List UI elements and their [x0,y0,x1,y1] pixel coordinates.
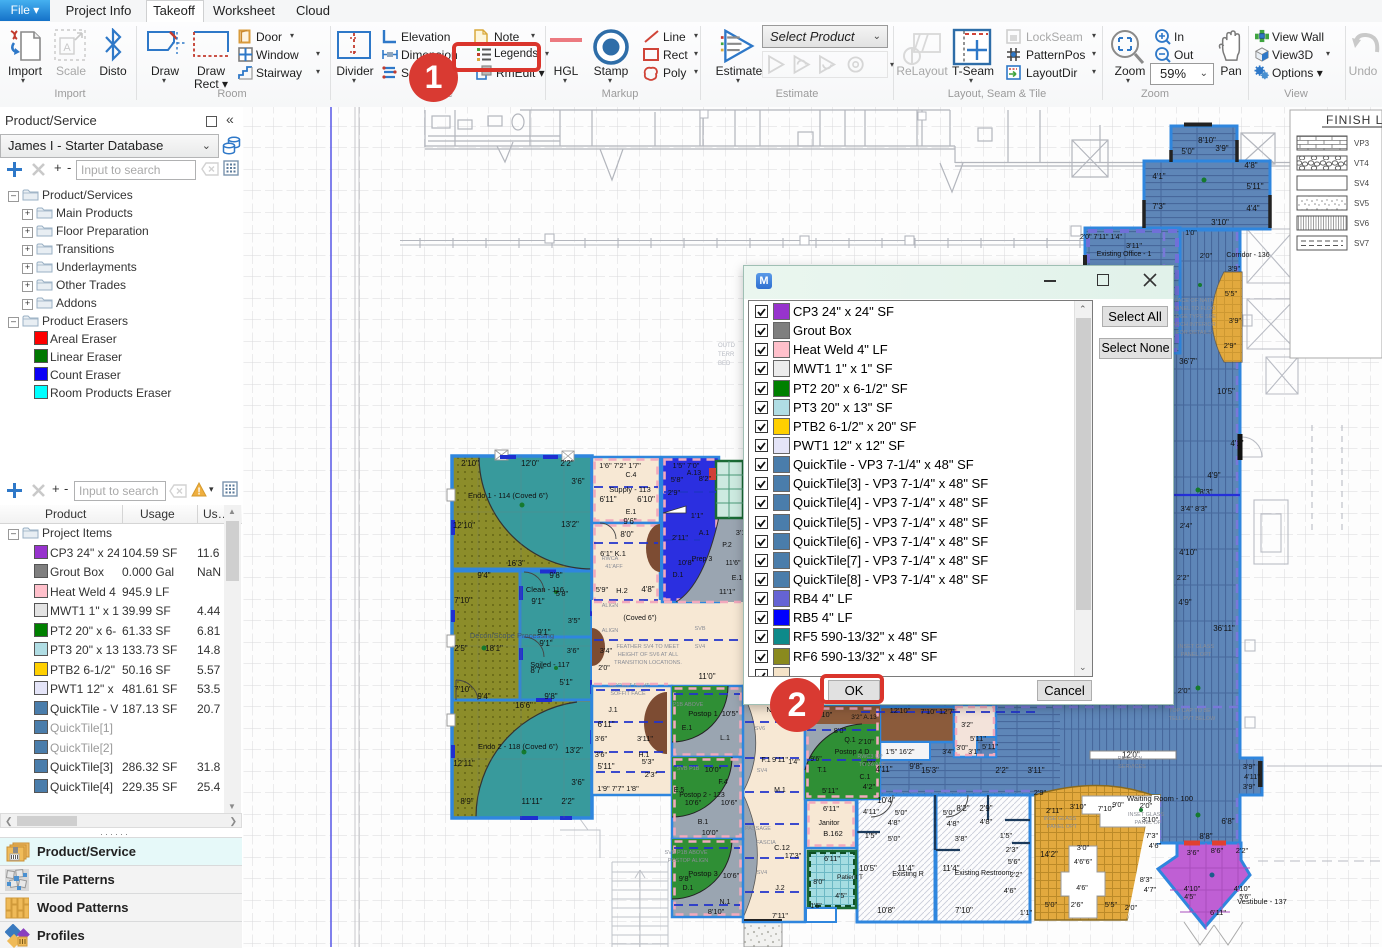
svg-text:3'11": 3'11" [637,734,653,743]
svg-text:2'0": 2'0" [1125,903,1138,912]
svg-text:16'3": 16'3" [507,559,525,568]
svg-text:6'11": 6'11" [824,854,840,863]
svg-text:C.1: C.1 [860,774,871,781]
svg-text:EDGE TYPE SEE: EDGE TYPE SEE [1172,314,1216,320]
svg-text:1'4": 1'4" [788,759,800,766]
svg-text:C.4: C.4 [626,472,637,479]
svg-text:10'8": 10'8" [877,906,895,915]
svg-text:SOFFIT FACE: SOFFIT FACE [610,691,646,697]
svg-text:2'6": 2'6" [1071,900,1084,909]
svg-text:2'2": 2'2" [1177,573,1190,582]
svg-text:5'5": 5'5" [1225,289,1238,298]
svg-text:7'10": 7'10" [454,685,472,694]
svg-text:OUTD: OUTD [718,343,736,349]
svg-text:ARCH INTERIOR: ARCH INTERIOR [1172,322,1215,328]
svg-text:B.1: B.1 [698,819,709,826]
svg-text:5'11": 5'11" [982,742,998,751]
svg-text:RWC3 UP: RWC3 UP [857,754,883,760]
svg-text:6'11": 6'11" [1210,908,1226,917]
svg-text:PASSAGE: PASSAGE [745,826,771,832]
svg-text:3'10": 3'10" [1070,802,1087,811]
svg-text:2'0": 2'0" [1200,251,1213,260]
svg-text:9'6": 9'6" [810,756,822,763]
svg-text:16'6": 16'6" [515,701,533,710]
svg-text:4'8": 4'8" [641,585,654,594]
svg-text:J.1: J.1 [608,707,617,714]
svg-text:4'9": 4'9" [1207,471,1220,480]
svg-text:2'11": 2'11" [672,533,688,542]
svg-text:10'6": 10'6" [685,798,702,807]
svg-text:36'11": 36'11" [1213,624,1235,633]
svg-text:P1B ABOVE: P1B ABOVE [673,702,704,708]
svg-text:8'0": 8'0" [813,879,825,886]
svg-text:36'7": 36'7" [1179,357,1197,366]
svg-text:PANEL OPT: PANEL OPT [1047,824,1078,830]
svg-text:7'10" 12'7": 7'10" 12'7" [920,707,956,716]
svg-text:3'4" 8'3": 3'4" 8'3" [1181,504,1208,513]
svg-text:FASCIA: FASCIA [756,840,776,846]
svg-text:2'9": 2'9" [1034,788,1047,797]
svg-text:2'0": 2'0" [1178,686,1191,695]
svg-text:13'2": 13'2" [565,746,583,755]
svg-text:7'3": 7'3" [1146,831,1159,840]
svg-text:9'4": 9'4" [477,571,490,580]
svg-text:8'8": 8'8" [1199,832,1212,841]
svg-text:TELL PVT BELOW: TELL PVT BELOW [1169,716,1216,722]
svg-text:6'11": 6'11" [599,495,616,504]
svg-text:5'11": 5'11" [597,762,614,771]
svg-text:A: A [63,42,71,54]
svg-text:11'1": 11'1" [719,587,735,596]
svg-text:SV7: SV7 [1354,239,1370,248]
svg-text:HEIGHT OF SV6 AT ALL: HEIGHT OF SV6 AT ALL [618,652,679,658]
svg-text:5'11": 5'11" [1246,182,1263,191]
svg-text:Existing R: Existing R [892,871,924,878]
svg-text:15'3": 15'3" [921,766,939,775]
svg-text:RPS GEN: RPS GEN [1118,756,1143,762]
svg-text:B.162: B.162 [823,829,843,838]
svg-text:2'10": 2'10" [461,459,479,468]
svg-text:INSET GLASS: INSET GLASS [1128,812,1164,818]
svg-text:3'6": 3'6" [567,646,580,655]
svg-text:4'6": 4'6" [1149,841,1162,850]
svg-text:9'1": 9'1" [537,628,550,637]
svg-text:SV6: SV6 [1354,219,1370,228]
svg-text:7'10": 7'10" [955,906,973,915]
svg-text:M.1: M.1 [774,787,786,794]
svg-text:5'3": 5'3" [642,757,655,766]
svg-text:Waiting Room - 100: Waiting Room - 100 [1127,794,1193,803]
svg-text:5'0": 5'0" [895,808,908,817]
svg-text:F.1: F.1 [761,757,770,764]
svg-text:2'9": 2'9" [668,488,681,497]
svg-text:5'0": 5'0" [1045,900,1058,909]
svg-text:1'5" 7'0": 1'5" 7'0" [673,461,700,470]
svg-text:3'0": 3'0" [1077,843,1090,852]
svg-text:2'9": 2'9" [1224,341,1237,350]
svg-text:J.2: J.2 [775,885,784,892]
svg-text:7'11": 7'11" [772,911,788,920]
svg-text:3'4": 3'4" [600,646,613,655]
svg-text:3'5": 3'5" [568,616,581,625]
svg-text:2'3": 2'3" [645,770,658,779]
svg-text:12'10": 12'10" [453,521,475,530]
svg-text:9'0": 9'0" [1112,802,1124,809]
svg-text:2'10": 2'10" [858,739,874,746]
svg-text:10'5": 10'5" [1217,387,1235,396]
svg-text:41'AFF: 41'AFF [605,564,623,570]
svg-text:10'5": 10'5" [722,709,739,718]
svg-text:3'9": 3'9" [1229,316,1242,325]
svg-text:SV4: SV4 [757,870,767,876]
svg-text:5'1": 5'1" [559,678,572,687]
svg-text:5'6": 5'6" [1008,857,1021,866]
svg-text:FEATHER SV4 TO MEET: FEATHER SV4 TO MEET [617,644,681,650]
svg-text:ALIGN: ALIGN [602,628,619,634]
svg-text:PANEL OPT: PANEL OPT [1181,652,1212,658]
svg-text:Existing Office - 1: Existing Office - 1 [1097,251,1152,258]
svg-text:3'11": 3'11" [1126,241,1142,250]
svg-text:8'6": 8'6" [1211,846,1224,855]
svg-text:Janitor: Janitor [818,820,840,827]
svg-text:TRANSITION LOCATIONS.: TRANSITION LOCATIONS. [614,660,682,666]
svg-text:9'8": 9'8" [679,874,692,883]
svg-text:8'3": 8'3" [1140,875,1153,884]
svg-text:4'6": 4'6" [1004,886,1017,895]
svg-text:8'0": 8'0" [620,530,633,539]
svg-text:E.1: E.1 [682,725,693,732]
svg-text:D.1: D.1 [673,572,684,579]
svg-text:3'1": 3'1" [968,749,980,756]
svg-text:1'0": 1'0" [1185,230,1197,237]
svg-text:4'10": 4'10" [1234,884,1251,893]
svg-text:4'4": 4'4" [1246,204,1259,213]
svg-text:E.1: E.1 [626,509,637,516]
svg-text:4'8": 4'8" [980,817,993,826]
svg-text:12'11": 12'11" [453,759,475,768]
svg-text:Postop 3: Postop 3 [688,869,718,878]
svg-text:3'6": 3'6" [595,750,608,759]
svg-text:PANEL TO FLOO: PANEL TO FLOO [1173,306,1217,312]
svg-text:TERR: TERR [718,352,735,358]
svg-text:7'10": 7'10" [454,596,472,605]
svg-text:6'11": 6'11" [823,804,839,813]
svg-text:10'6": 10'6" [723,871,740,880]
svg-text:5'5": 5'5" [1105,900,1118,909]
svg-text:VP3: VP3 [1354,139,1370,148]
svg-text:1'5" 16'2": 1'5" 16'2" [885,749,915,756]
svg-text:1'5": 1'5" [1000,831,1013,840]
svg-text:9'8": 9'8" [549,571,562,580]
svg-text:4'10": 4'10" [1184,884,1201,893]
svg-text:5'8": 5'8" [556,589,569,598]
svg-text:9'4": 9'4" [477,692,490,701]
svg-text:2'4": 2'4" [1180,521,1193,530]
svg-text:P.2: P.2 [722,542,732,549]
svg-text:RWCA: RWCA [602,556,619,562]
svg-text:4'11": 4'11" [863,807,879,816]
svg-text:3'9": 3'9" [1215,144,1228,153]
svg-text:3'6": 3'6" [571,778,584,787]
svg-text:2'5": 2'5" [454,644,467,653]
svg-text:1'6": 1'6" [810,903,822,910]
svg-text:5'11": 5'11" [822,786,838,795]
svg-text:Postop 1: Postop 1 [688,709,718,718]
svg-text:PANEL OP: PANEL OP [1135,820,1162,826]
svg-text:5'8": 5'8" [671,475,684,484]
svg-text:9'11": 9'11" [772,755,788,764]
svg-text:T.1: T.1 [817,767,826,774]
svg-text:N.1: N.1 [720,899,731,906]
svg-text:3'4": 3'4" [942,749,954,756]
svg-text:8'10": 8'10" [1198,136,1216,145]
svg-text:3'9": 3'9" [1243,782,1256,791]
svg-text:5'0": 5'0" [888,834,901,843]
svg-text:Q.1: Q.1 [844,737,855,744]
svg-text:8'10": 8'10" [708,907,725,916]
svg-text:3'2": 3'2" [961,722,973,729]
svg-text:3'6": 3'6" [1187,848,1200,857]
svg-text:!: ! [197,487,200,498]
svg-text:4'10": 4'10" [1179,548,1197,557]
svg-text:Patient T: Patient T [837,874,863,881]
svg-text:10'0": 10'0" [702,828,719,837]
svg-text:12'0": 12'0" [521,459,539,468]
svg-text:SVB P1B: SVB P1B [677,766,700,772]
svg-text:2'2": 2'2" [560,459,573,468]
svg-text:2'2": 2'2" [1010,870,1023,879]
svg-text:9'1": 9'1" [531,597,544,606]
svg-text:11'6": 11'6" [726,560,741,567]
svg-text:3'11": 3'11" [1027,766,1044,775]
svg-text:4'2": 4'2" [863,782,876,791]
svg-text:2'3": 2'3" [1006,845,1019,854]
svg-text:11'0": 11'0" [698,672,715,681]
svg-text:9'6": 9'6" [623,517,636,526]
svg-text:3'6": 3'6" [595,734,608,743]
svg-text:TO 36'AFF: TO 36'AFF [859,762,886,768]
svg-text:SV4: SV4 [757,768,767,774]
svg-text:10'5": 10'5" [859,864,877,873]
svg-text:H.2: H.2 [616,586,628,595]
svg-text:2'11": 2'11" [1046,806,1062,815]
svg-text:3'0": 3'0" [956,745,968,752]
svg-text:FINISH LE: FINISH LE [1326,113,1382,127]
svg-text:4'1": 4'1" [1152,172,1165,181]
svg-text:4'8": 4'8" [888,818,901,827]
svg-text:FACE OF NATA: FACE OF NATA [1175,298,1214,304]
svg-text:Vestibule - 137: Vestibule - 137 [1237,897,1287,906]
svg-text:(Coved 6"): (Coved 6") [623,615,656,622]
svg-text:1'9" 7'7" 1'8": 1'9" 7'7" 1'8" [597,784,639,793]
svg-text:3'10": 3'10" [1211,218,1229,227]
svg-text:10'0": 10'0" [705,765,722,774]
svg-text:Existing Restroom: Existing Restroom [955,870,1012,877]
svg-text:VT4: VT4 [1354,159,1369,168]
svg-text:4'5": 4'5" [835,893,847,900]
svg-text:SV4: SV4 [1354,179,1370,188]
svg-text:D.1: D.1 [683,885,694,892]
svg-text:4'9": 4'9" [1178,598,1191,607]
svg-text:1'5": 1'5" [865,831,878,840]
svg-text:Supply - 113: Supply - 113 [609,485,651,494]
svg-text:INSE GLASS: INSE GLASS [1044,816,1077,822]
svg-text:13'2": 13'2" [561,520,579,529]
svg-text:7'3": 7'3" [1152,202,1165,211]
svg-text:3'9": 3'9" [1228,264,1241,273]
svg-text:8'0": 8'0" [834,726,847,735]
svg-text:8'7": 8'7" [530,666,543,675]
svg-text:4'6"6": 4'6"6" [1074,859,1093,866]
svg-text:3'8": 3'8" [955,834,968,843]
svg-text:F.4: F.4 [718,779,727,786]
svg-text:E.1: E.1 [732,575,743,582]
svg-text:4'8": 4'8" [947,819,960,828]
svg-text:4'11": 4'11" [1244,772,1260,781]
svg-text:4'6": 4'6" [1076,885,1088,892]
svg-text:2'0" 7'11" 1'4": 2'0" 7'11" 1'4" [1080,234,1123,241]
svg-text:E.5: E.5 [674,787,685,794]
svg-text:Corridor - 136: Corridor - 136 [1226,252,1269,259]
svg-text:SVB P1B ABOVE: SVB P1B ABOVE [664,850,707,856]
svg-text:9'8": 9'8" [544,692,557,701]
svg-text:4'7": 4'7" [1144,885,1157,894]
svg-text:TOP CAP TO BE: TOP CAP TO BE [1169,708,1211,714]
svg-text:3'9": 3'9" [1243,762,1256,771]
svg-text:INSET GLASS: INSET GLASS [1178,644,1214,650]
svg-text:A.13: A.13 [687,470,702,477]
svg-text:2'2": 2'2" [995,766,1008,775]
svg-text:14'2": 14'2" [1040,850,1058,859]
svg-text:12'10": 12'10" [890,706,911,715]
svg-text:2'9": 2'9" [979,804,992,813]
svg-text:1'6" 7'2" 1'7": 1'6" 7'2" 1'7" [599,461,641,470]
svg-text:3'6": 3'6" [571,477,584,486]
svg-text:5'0": 5'0" [1181,147,1194,156]
svg-text:6'10": 6'10" [637,495,655,504]
svg-text:3'2" A.13: 3'2" A.13 [851,714,877,721]
svg-text:6'11": 6'11" [597,720,614,729]
svg-text:SV6: SV6 [755,726,765,732]
svg-text:17'3": 17'3" [785,851,802,860]
svg-text:SVB: SVB [694,626,705,632]
svg-text:ALIGN: ALIGN [602,603,619,609]
svg-text:8'9": 8'9" [460,797,473,806]
svg-text:L.1: L.1 [720,735,730,742]
svg-text:Endo 2 - 118 (Coved 6"): Endo 2 - 118 (Coved 6") [478,742,559,751]
svg-text:SV4: SV4 [695,644,705,650]
svg-text:A.1: A.1 [699,530,710,537]
svg-text:18'1": 18'1" [485,644,503,653]
svg-text:1'1": 1'1" [1020,908,1033,917]
svg-text:SV5: SV5 [1354,199,1370,208]
svg-text:10'6": 10'6" [721,798,738,807]
svg-text:Endo 1 - 114 (Coved 6"): Endo 1 - 114 (Coved 6") [468,491,549,500]
svg-text:6'8": 6'8" [1221,817,1234,826]
svg-text:BED: BED [718,361,731,367]
svg-text:1'1": 1'1" [691,511,704,520]
svg-text:4'8": 4'8" [1244,161,1257,170]
svg-text:2'0": 2'0" [598,665,610,672]
svg-text:2'2": 2'2" [561,797,574,806]
svg-text:5'9": 5'9" [596,585,609,594]
svg-text:FOR DETAILS: FOR DETAILS [1176,330,1212,336]
svg-text:11'11": 11'11" [522,797,543,806]
svg-text:4'5": 4'5" [1184,894,1196,901]
svg-text:Prep 3: Prep 3 [692,556,713,563]
svg-text:SERVICES: SERVICES [1118,764,1146,770]
svg-text:2'2": 2'2" [1236,846,1249,855]
svg-text:POSTOP ALIGN: POSTOP ALIGN [668,858,708,864]
